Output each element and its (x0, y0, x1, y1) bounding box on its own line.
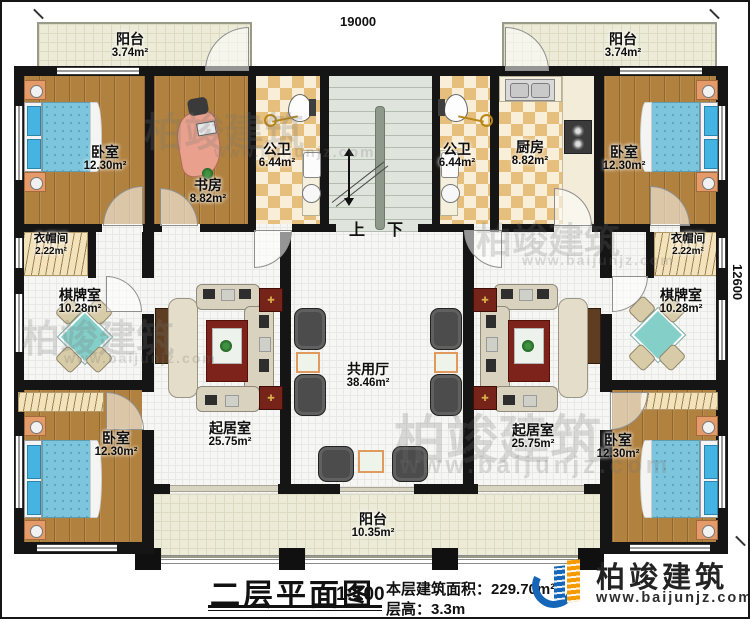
window (718, 106, 726, 180)
stair-down-label: 下 (387, 216, 403, 240)
wall (320, 76, 329, 232)
label-cloak-l: 衣帽间2.22m² (34, 233, 69, 257)
tv-cabinet (155, 308, 169, 364)
window (15, 238, 23, 268)
bed-sheet (640, 440, 652, 518)
label-bedroom-br: 卧室12.30m² (597, 433, 640, 462)
bed-headboard (700, 102, 718, 172)
wall (584, 484, 612, 494)
armchair (294, 374, 326, 416)
nightstand (696, 416, 718, 436)
armchair (294, 308, 326, 350)
label-balcony-tr: 阳台3.74m² (605, 32, 641, 61)
closet (640, 392, 718, 410)
window (15, 106, 23, 180)
sink-icon (302, 184, 321, 203)
wall (600, 314, 612, 392)
wall (490, 76, 499, 232)
label-shared-hall: 共用厅38.46m² (347, 362, 390, 391)
pillar (432, 548, 458, 570)
chaise-lounge (168, 298, 198, 398)
floor-height-line: 层高：3.3m (386, 598, 465, 619)
label-kitchen: 厨房8.82m² (512, 140, 548, 169)
floor-area-label: 本层建筑面积： (386, 581, 491, 598)
bed-headboard (24, 440, 42, 518)
pillar (279, 548, 305, 570)
floorplan-canvas: 19000 12600 (0, 0, 750, 619)
plan-scale: 1:100 (336, 584, 385, 606)
label-bedroom-tr: 卧室12.30m² (603, 145, 646, 174)
wall (14, 224, 102, 232)
window (15, 436, 23, 508)
wall (612, 380, 728, 390)
nightstand (24, 172, 46, 192)
wall (600, 232, 612, 278)
dimension-tick (735, 536, 746, 547)
sliding-door (170, 485, 278, 492)
bed (644, 102, 700, 172)
dimension-tick (709, 9, 720, 20)
wall (142, 232, 154, 278)
tea-table (358, 450, 384, 473)
wall (463, 232, 474, 484)
washer-icon (303, 152, 321, 178)
nightstand (24, 520, 46, 540)
arrow-down-icon (344, 198, 354, 206)
armchair (430, 374, 462, 416)
wall (248, 76, 256, 232)
closet (18, 392, 104, 412)
tv-cabinet (587, 308, 601, 364)
window (630, 544, 710, 552)
chaise-lounge (558, 298, 588, 398)
nightstand (24, 416, 46, 436)
plant-icon (220, 340, 232, 352)
armchair (392, 446, 428, 482)
floor-height-value: 3.3m (431, 601, 465, 618)
wall (88, 232, 96, 278)
label-bedroom-bl: 卧室12.30m² (95, 431, 138, 460)
kitchen-sink-icon (505, 79, 555, 101)
plant-icon (522, 340, 534, 352)
dimension-tick (33, 9, 44, 20)
balcony-opening (340, 487, 414, 492)
sofa (244, 306, 274, 392)
tea-table (434, 352, 458, 373)
toilet-tank (309, 99, 316, 116)
nightstand (696, 520, 718, 540)
wall (280, 232, 291, 484)
arrow-up-icon (344, 148, 354, 156)
sofa (494, 386, 558, 412)
label-bath-l: 公卫6.44m² (259, 142, 295, 171)
label-balcony-b: 阳台10.35m² (352, 512, 395, 541)
wall (278, 484, 340, 494)
stove-icon (564, 120, 592, 154)
sofa (196, 386, 260, 412)
label-cloak-r: 衣帽间2.22m² (671, 233, 706, 257)
title-underline-thin (208, 610, 382, 611)
label-chess-r: 棋牌室10.28m² (660, 288, 703, 317)
armchair (318, 446, 354, 482)
label-bedroom-tl: 卧室12.30m² (84, 145, 127, 174)
wall (646, 232, 654, 278)
wall (592, 224, 650, 232)
floor-height-label: 层高： (386, 601, 431, 618)
window (718, 300, 726, 360)
dimension-right: 12600 (730, 264, 745, 300)
bed (644, 440, 700, 518)
stair-up-label: 上 (349, 216, 365, 240)
wall (142, 484, 170, 494)
sofa (480, 306, 510, 392)
nightstand (696, 172, 718, 192)
company-logo-icon (530, 554, 592, 614)
window (37, 544, 117, 552)
window (718, 238, 726, 268)
side-table: ✚ (473, 288, 497, 312)
wall (292, 224, 336, 232)
window (620, 67, 702, 75)
armchair (430, 308, 462, 350)
label-balcony-tl: 阳台3.74m² (112, 32, 148, 61)
label-bath-r: 公卫6.44m² (439, 142, 475, 171)
side-table: ✚ (473, 386, 497, 410)
wall (200, 224, 254, 232)
label-study: 书房8.82m² (190, 178, 226, 207)
wall (145, 76, 154, 232)
label-living-r: 起居室25.75m² (512, 423, 555, 452)
company-website: www.baijunjz.com (596, 590, 750, 606)
bed-headboard (700, 440, 718, 518)
wall (414, 484, 478, 494)
window (57, 67, 139, 75)
side-table: ✚ (259, 288, 283, 312)
wall (14, 380, 142, 390)
wall (502, 224, 554, 232)
toilet-tank (438, 99, 445, 116)
label-living-l: 起居室25.75m² (209, 421, 252, 450)
stair-direction-arrow (348, 154, 350, 200)
nightstand (24, 80, 46, 100)
dimension-top: 19000 (340, 14, 376, 29)
sink-icon (441, 184, 460, 203)
nightstand (696, 80, 718, 100)
sliding-door (478, 485, 584, 492)
window (718, 436, 726, 508)
wall (142, 314, 154, 392)
tea-table (296, 352, 320, 373)
label-chess-l: 棋牌室10.28m² (59, 288, 102, 317)
side-table: ✚ (259, 386, 283, 410)
bed-headboard (24, 102, 42, 172)
window (15, 294, 23, 352)
